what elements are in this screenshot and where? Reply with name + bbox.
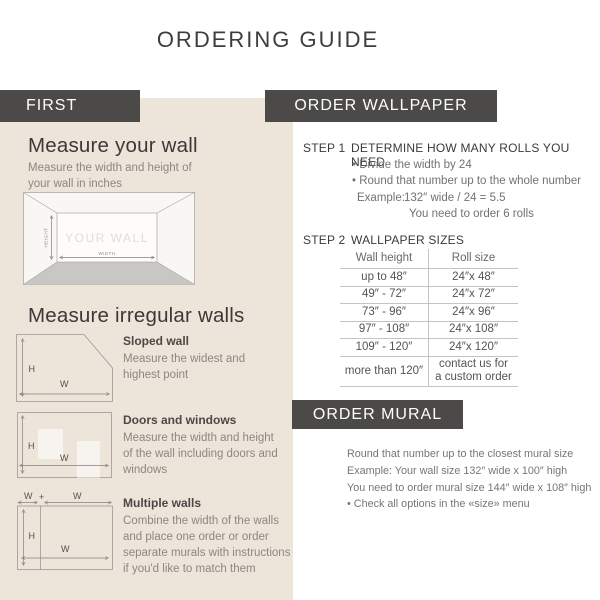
order-wallpaper-header: ORDER WALLPAPER (265, 90, 497, 122)
ordering-guide-page: ORDERING GUIDE FIRST Measure your wall M… (0, 0, 600, 600)
table-cell: more than 120″ (340, 357, 428, 387)
mural-instruction-line: You need to order mural size 144″ wide x… (347, 480, 591, 497)
first-section-header: FIRST (0, 90, 140, 122)
measure-wall-description: Measure the width and height of your wal… (28, 160, 198, 192)
h-label: H (29, 364, 36, 374)
w-label: W (60, 453, 69, 463)
sloped-wall-diagram: H W (16, 334, 113, 402)
w-label: W (61, 544, 70, 554)
order-mural-header: ORDER MURAL (292, 400, 463, 429)
w2-label: W (73, 491, 82, 501)
order-mural-header-label: ORDER MURAL (313, 406, 442, 424)
doors-windows-description: Measure the width and height of the wall… (123, 430, 285, 478)
table-cell: 73″ - 96″ (340, 304, 428, 322)
example-value: 132″ wide / 24 = 5.5 (404, 192, 506, 204)
table-cell: 97″ - 108″ (340, 322, 428, 340)
page-title: ORDERING GUIDE (0, 27, 536, 53)
mural-instructions: Round that number up to the closest mura… (347, 446, 591, 513)
step1-bullet: • Divide the width by 24 (352, 158, 581, 174)
table-cell: 24″x 48″ (428, 269, 518, 287)
table-cell: 24″x 120″ (428, 339, 518, 357)
step1-bullet-list: • Divide the width by 24 • Round that nu… (352, 158, 581, 189)
your-wall-label: YOUR WALL (65, 231, 149, 245)
multiple-walls-description: Combine the width of the walls and place… (123, 513, 293, 577)
multiple-walls-title: Multiple walls (123, 496, 201, 510)
table-header-wall-height: Wall height (340, 249, 428, 269)
table-cell: 24″x 96″ (428, 304, 518, 322)
h-label: H (28, 441, 35, 451)
measure-wall-heading: Measure your wall (28, 134, 198, 158)
doors-windows-diagram: H W (17, 412, 112, 478)
doors-windows-title: Doors and windows (123, 413, 236, 427)
table-cell: 49″ - 72″ (340, 287, 428, 305)
multiple-walls-diagram: W + W H W (17, 491, 113, 570)
mural-instruction-line: Round that number up to the closest mura… (347, 446, 591, 463)
table-cell: up to 48″ (340, 269, 428, 287)
step2-label: STEP 2 (303, 233, 345, 247)
sloped-wall-title: Sloped wall (123, 334, 189, 348)
sloped-wall-description: Measure the widest and highest point (123, 351, 275, 383)
wallpaper-sizes-table: Wall height Roll size up to 48″ 24″x 48″… (340, 249, 518, 387)
h-label: H (29, 531, 36, 541)
plus-label: + (39, 492, 44, 502)
w-label: W (60, 379, 69, 389)
width-label: WIDTH (98, 251, 115, 256)
step1-label: STEP 1 (303, 141, 345, 155)
table-cell: 109″ - 120″ (340, 339, 428, 357)
table-header-roll-size: Roll size (428, 249, 518, 269)
table-cell: 24″x 72″ (428, 287, 518, 305)
irregular-walls-heading: Measure irregular walls (28, 304, 245, 328)
first-section-header-label: FIRST (26, 97, 77, 115)
order-wallpaper-header-label: ORDER WALLPAPER (294, 97, 467, 115)
wall-diagram: YOUR WALL HEIGHT WIDTH (23, 192, 195, 285)
step1-bullet: • Round that number up to the whole numb… (352, 174, 581, 190)
example-result: You need to order 6 rolls (409, 208, 534, 220)
w1-label: W (24, 491, 33, 501)
table-cell: contact us for a custom order (428, 357, 518, 387)
step2-title: WALLPAPER SIZES (351, 233, 464, 247)
example-label: Example: (357, 192, 405, 204)
table-cell: 24″x 108″ (428, 322, 518, 340)
mural-instruction-line: Example: Your wall size 132″ wide x 100″… (347, 463, 591, 480)
mural-instruction-line: • Check all options in the «size» menu (347, 496, 591, 513)
door-shape (77, 441, 100, 478)
height-label: HEIGHT (44, 227, 49, 247)
